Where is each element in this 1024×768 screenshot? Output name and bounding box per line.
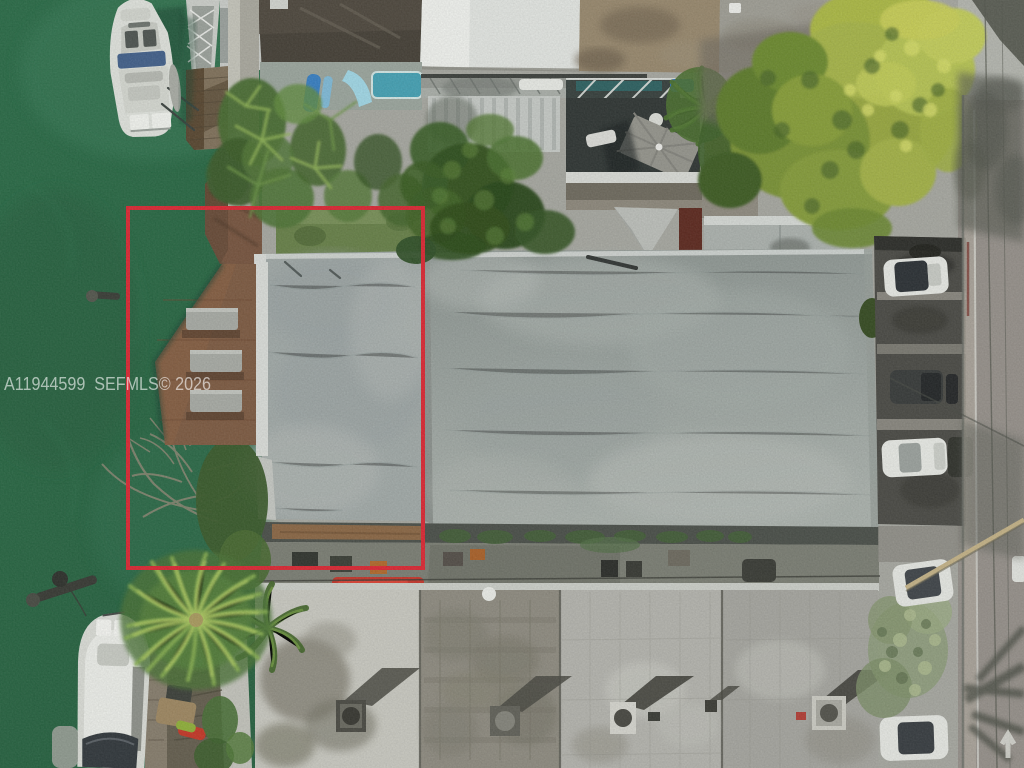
svg-text:A11944599 SEFMLS© 2026: A11944599 SEFMLS© 2026 — [4, 373, 211, 394]
